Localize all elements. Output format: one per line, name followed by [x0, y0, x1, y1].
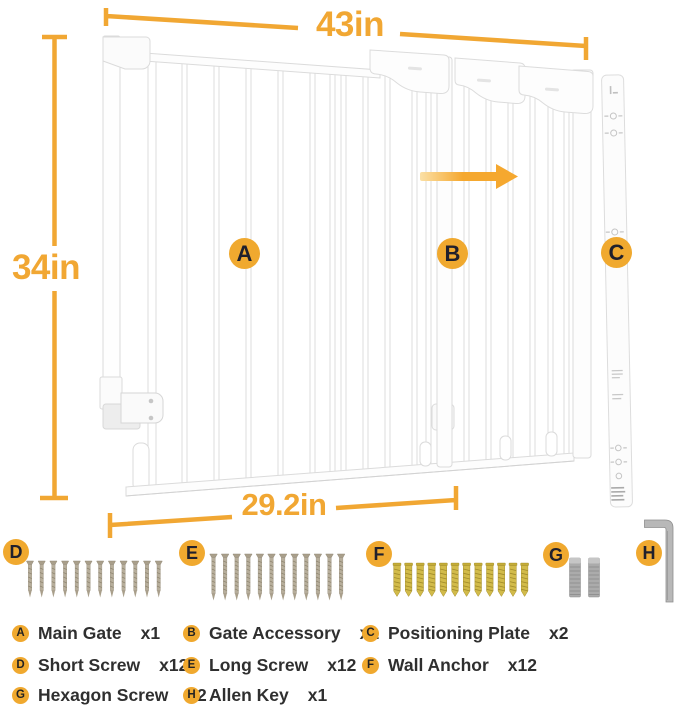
dimension-bottom-label: 29.2in [228, 489, 340, 520]
part-name: Long Screw [209, 655, 308, 676]
part-count: x12 [327, 655, 356, 676]
wall-anchors-graphic [393, 563, 529, 597]
short-screws-graphic [26, 561, 162, 598]
part-name: Wall Anchor [388, 655, 489, 676]
marker-positioning-plate: C [601, 237, 632, 268]
marker-gate-accessory: B [437, 238, 468, 269]
dimension-left-label: 34in [2, 250, 90, 285]
part-name: Main Gate [38, 623, 122, 644]
legend-marker: A [12, 625, 29, 642]
marker-short-screw: D [3, 539, 29, 565]
part-name: Hexagon Screw [38, 685, 168, 706]
product-diagram-page: 43in 34in 29.2in A B C D E F G H A Main … [0, 0, 679, 709]
part-count: x1 [141, 623, 160, 644]
main-gate-graphic [100, 36, 574, 496]
part-count: x12 [508, 655, 537, 676]
marker-allen-key: H [636, 540, 662, 566]
hexagon-screws-graphic [570, 558, 600, 597]
legend-item-positioning-plate: C Positioning Plate x2 [362, 623, 568, 643]
legend-marker: E [183, 657, 200, 674]
marker-main-gate: A [229, 238, 260, 269]
part-name: Allen Key [209, 685, 289, 706]
legend-marker: C [362, 625, 379, 642]
positioning-plate-graphic [601, 75, 632, 507]
marker-wall-anchor: F [366, 541, 392, 567]
part-name: Gate Accessory [209, 623, 341, 644]
dimension-top-label: 43in [298, 7, 402, 42]
legend-marker: F [362, 657, 379, 674]
long-screws-graphic [210, 554, 345, 601]
legend-item-main-gate: A Main Gate x1 [12, 623, 160, 643]
part-count: x1 [308, 685, 327, 706]
legend-item-hexagon-screw: G Hexagon Screw x2 [12, 685, 207, 705]
legend-item-allen-key: H Allen Key x1 [183, 685, 327, 705]
marker-hexagon-screw: G [543, 542, 569, 568]
legend-item-long-screw: E Long Screw x12 [183, 655, 356, 675]
marker-long-screw: E [179, 540, 205, 566]
legend-marker: G [12, 687, 29, 704]
legend-marker: B [183, 625, 200, 642]
legend-item-gate-accessory: B Gate Accessory x1 [183, 623, 379, 643]
legend-item-short-screw: D Short Screw x12 [12, 655, 188, 675]
legend-item-wall-anchor: F Wall Anchor x12 [362, 655, 537, 675]
legend-marker: D [12, 657, 29, 674]
legend-marker: H [183, 687, 200, 704]
part-name: Short Screw [38, 655, 140, 676]
part-count: x2 [549, 623, 568, 644]
product-diagram-graphic [0, 0, 679, 709]
gate-accessory-graphic [370, 50, 593, 467]
part-name: Positioning Plate [388, 623, 530, 644]
